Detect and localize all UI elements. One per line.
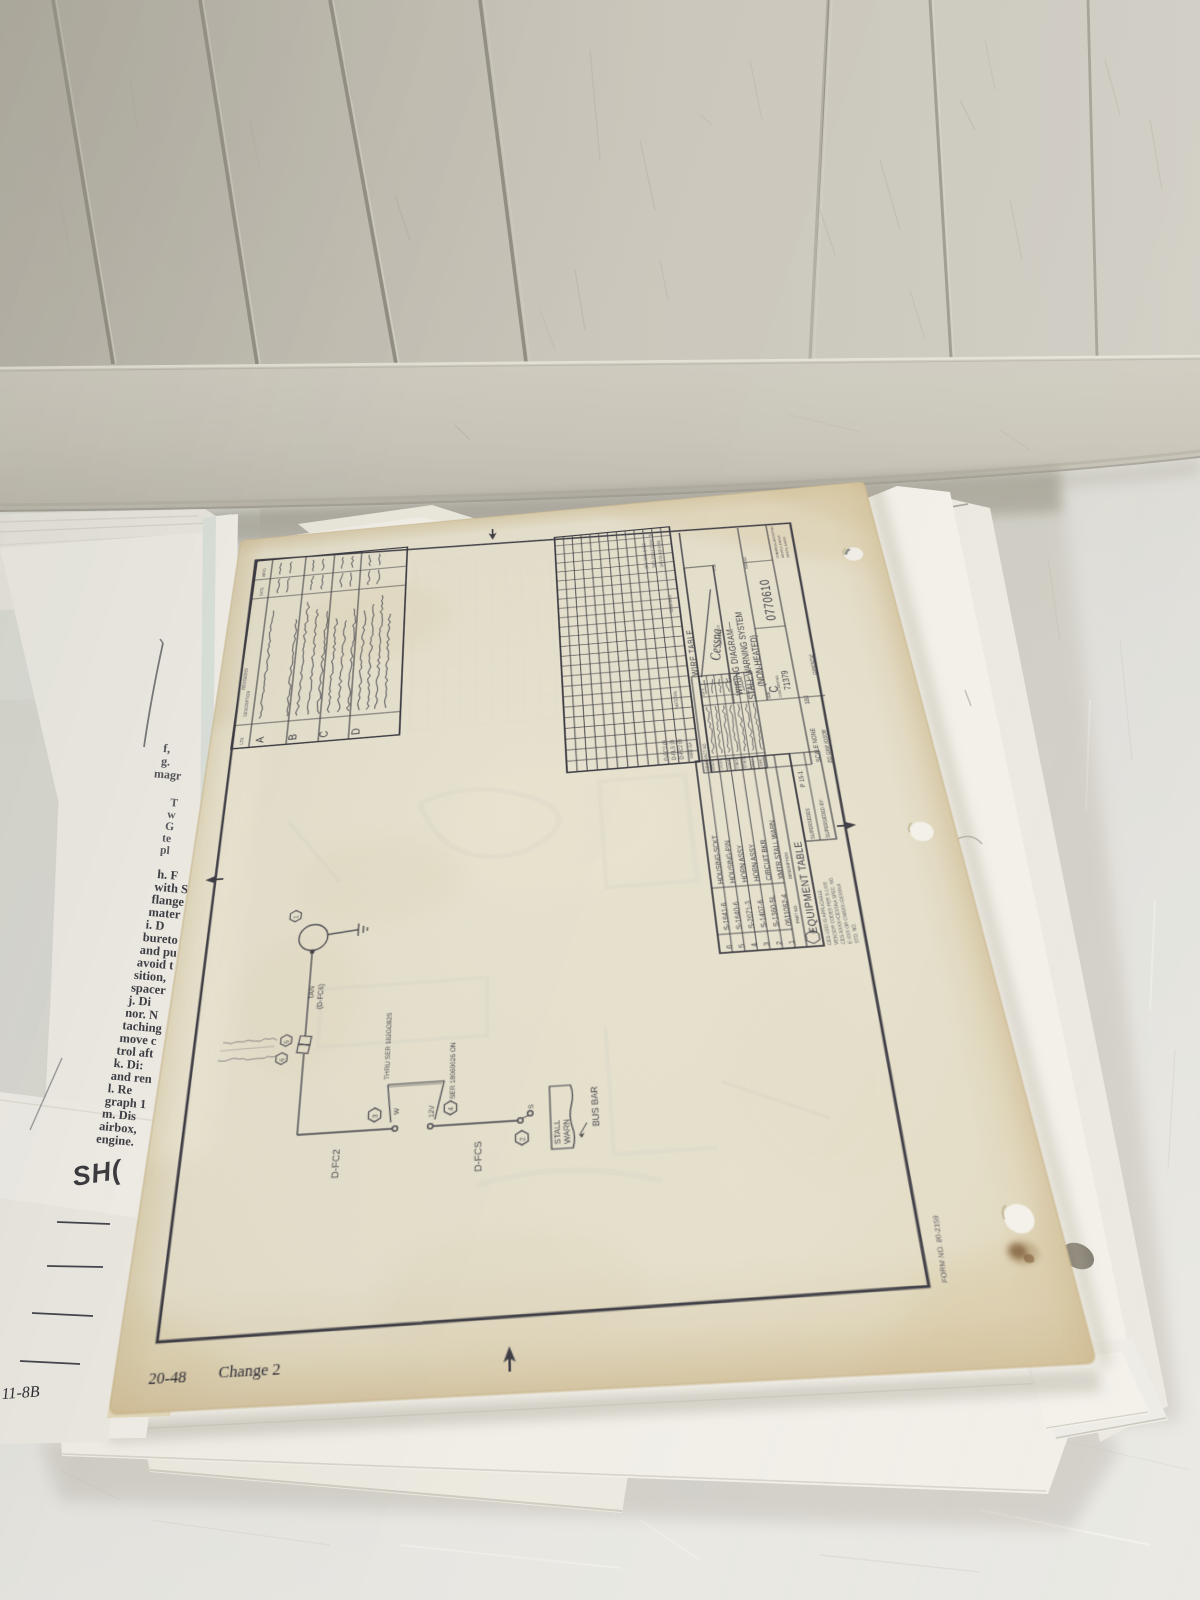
svg-text:B: B	[286, 734, 300, 741]
svg-text:STALL: STALL	[552, 1119, 562, 1145]
svg-text:2: 2	[517, 1135, 526, 1141]
svg-text:T: T	[170, 797, 179, 810]
svg-text:LTR: LTR	[239, 737, 246, 745]
svg-text:W: W	[392, 1107, 401, 1114]
svg-text:12V: 12V	[427, 1104, 436, 1117]
svg-text:Change 2: Change 2	[218, 1359, 282, 1382]
svg-text:S: S	[526, 1103, 535, 1109]
svg-text:SER 18060626 ON: SER 18060626 ON	[448, 1042, 457, 1100]
svg-text:4: 4	[446, 1106, 455, 1112]
svg-text:20-48: 20-48	[147, 1367, 187, 1388]
svg-text:6: 6	[279, 1058, 286, 1062]
svg-text:3: 3	[370, 1113, 379, 1119]
svg-text:pl: pl	[160, 844, 171, 857]
svg-text:5: 5	[283, 1040, 290, 1044]
svg-text:D-FC2: D-FC2	[331, 1149, 344, 1179]
svg-text:te: te	[162, 832, 172, 845]
svg-text:11-8B: 11-8B	[1, 1383, 40, 1403]
svg-text:D-FCS: D-FCS	[474, 1140, 485, 1172]
svg-text:G: G	[165, 821, 175, 834]
svg-text:WARN: WARN	[562, 1119, 572, 1144]
svg-text:Ces: Ces	[811, 928, 817, 934]
svg-text:magr: magr	[153, 766, 182, 782]
svg-text:TAN: TAN	[307, 986, 316, 1000]
